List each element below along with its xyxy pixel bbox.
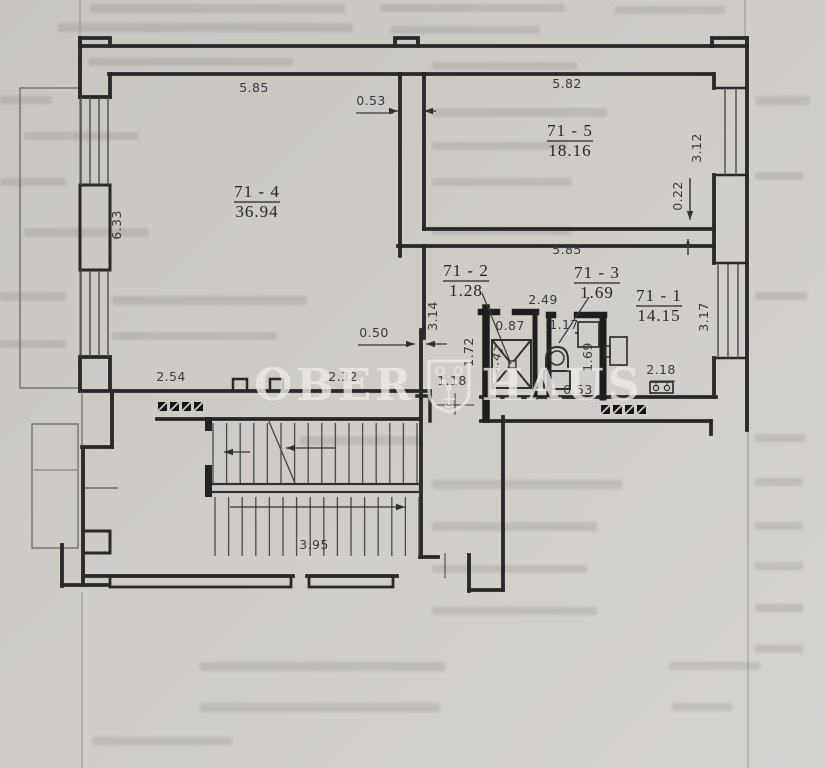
- arrowhead-icon: [224, 449, 233, 455]
- dimension-label: 5.85: [552, 242, 581, 257]
- arrowhead-icon: [426, 341, 435, 347]
- arrowhead-icon: [406, 341, 415, 347]
- dimension-label: 0.53: [356, 93, 385, 108]
- dimension-arrows: [224, 108, 693, 510]
- dimension-label: 0.50: [359, 325, 388, 340]
- room-id-label: 71 - 5: [547, 121, 593, 140]
- room-area-label: 36.94: [235, 202, 278, 221]
- scanned-floor-plan-page: 71 - 436.9471 - 518.1671 - 21.2871 - 31.…: [0, 0, 826, 768]
- room-area-label: 18.16: [548, 141, 591, 160]
- arrowhead-icon: [389, 108, 398, 114]
- room-area-label: 1.69: [580, 283, 614, 302]
- balcony-outlines: [20, 88, 80, 548]
- arrowhead-icon: [396, 504, 405, 510]
- room-id-label: 71 - 3: [574, 263, 620, 282]
- arrowhead-icon: [286, 445, 295, 451]
- dimension-label: 2.49: [528, 292, 557, 307]
- room-id-label: 71 - 2: [443, 261, 489, 280]
- dimension-label: 3.14: [425, 301, 440, 330]
- dimension-label: 3.12: [689, 133, 704, 162]
- dimension-label: 3.95: [299, 537, 328, 552]
- dimension-label: 5.85: [239, 80, 268, 95]
- plan-text-labels: 71 - 436.9471 - 518.1671 - 21.2871 - 31.…: [109, 76, 711, 552]
- dimension-label: 2.18: [646, 362, 675, 377]
- watermark-text-left: OBER: [254, 364, 416, 408]
- dimension-label: 6.33: [109, 210, 124, 239]
- room-id-label: 71 - 4: [234, 182, 280, 201]
- room-area-label: 1.28: [449, 281, 483, 300]
- staircase-rail: [205, 417, 420, 497]
- room-area-label: 14.15: [637, 306, 680, 325]
- arrowhead-icon: [687, 211, 693, 220]
- dimension-label: 2.54: [156, 369, 185, 384]
- ober-haus-shield-icon: [426, 358, 472, 414]
- dimension-label: 0.22: [670, 181, 685, 210]
- watermark: OBER HAUS: [254, 358, 643, 414]
- arrowhead-icon: [685, 239, 691, 248]
- window-sill-caps: [714, 88, 747, 358]
- watermark-text-right: HAUS: [482, 364, 644, 408]
- dimension-label: 1.17: [549, 317, 578, 332]
- stove-symbol: [650, 382, 673, 393]
- dimension-label: 5.82: [552, 76, 581, 91]
- room-id-label: 71 - 1: [636, 286, 682, 305]
- dimension-label: 3.17: [696, 302, 711, 331]
- dimension-label: 0.87: [495, 318, 524, 333]
